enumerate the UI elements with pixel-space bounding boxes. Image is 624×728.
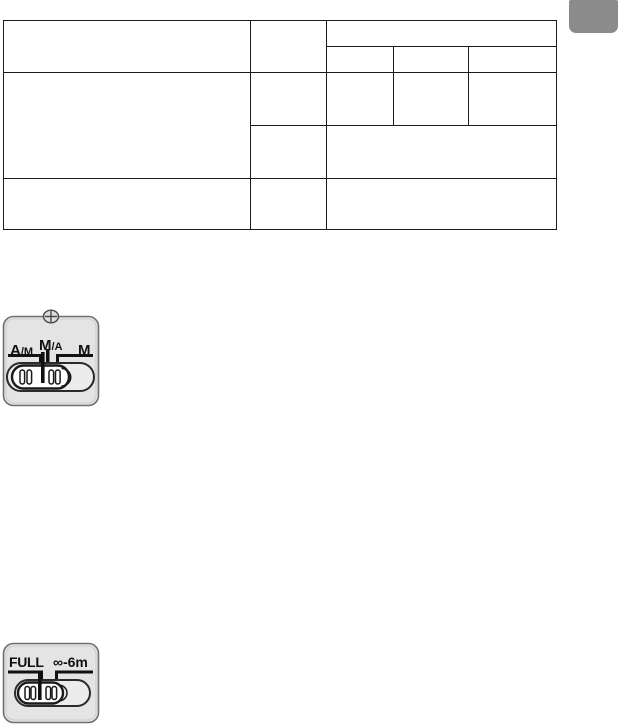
- knob-indicator: [38, 672, 42, 700]
- page-tab-marker: [569, 0, 618, 33]
- spec-table: [3, 20, 557, 230]
- table-cell-r3c3a: [327, 73, 394, 126]
- table-cell-r2c3c: [469, 47, 557, 73]
- table-cell-r1c2: [251, 21, 327, 73]
- focus-limit-switch-figure: FULL ∞-6m: [2, 641, 102, 728]
- table-cell-r4c3: [327, 126, 557, 179]
- table-cell-r1c3-band: [327, 21, 557, 47]
- table-cell-r5c3: [327, 179, 557, 230]
- manual-page: A/M M/A M FULL ∞-6m: [0, 0, 624, 728]
- focus-limit-label-full: FULL: [9, 654, 44, 670]
- table-cell-r4c2: [251, 126, 327, 179]
- table-cell-r5c1: [4, 179, 251, 230]
- table-cell-r3c2: [251, 73, 327, 126]
- table-cell-r1c1: [4, 21, 251, 73]
- table-cell-r2c3b: [394, 47, 469, 73]
- table-cell-r3c3b: [394, 73, 469, 126]
- knob-indicator: [41, 352, 45, 383]
- table-cell-r2c3a: [327, 47, 394, 73]
- switch-plate: [4, 317, 99, 406]
- focus-limit-label-range: ∞-6m: [53, 654, 88, 670]
- table-cell-r3c3c: [469, 73, 557, 126]
- table-cell-r5c2: [251, 179, 327, 230]
- screw-icon: [44, 310, 59, 323]
- table-cell-r3c1: [4, 73, 251, 179]
- focus-mode-switch-figure: A/M M/A M: [2, 308, 102, 408]
